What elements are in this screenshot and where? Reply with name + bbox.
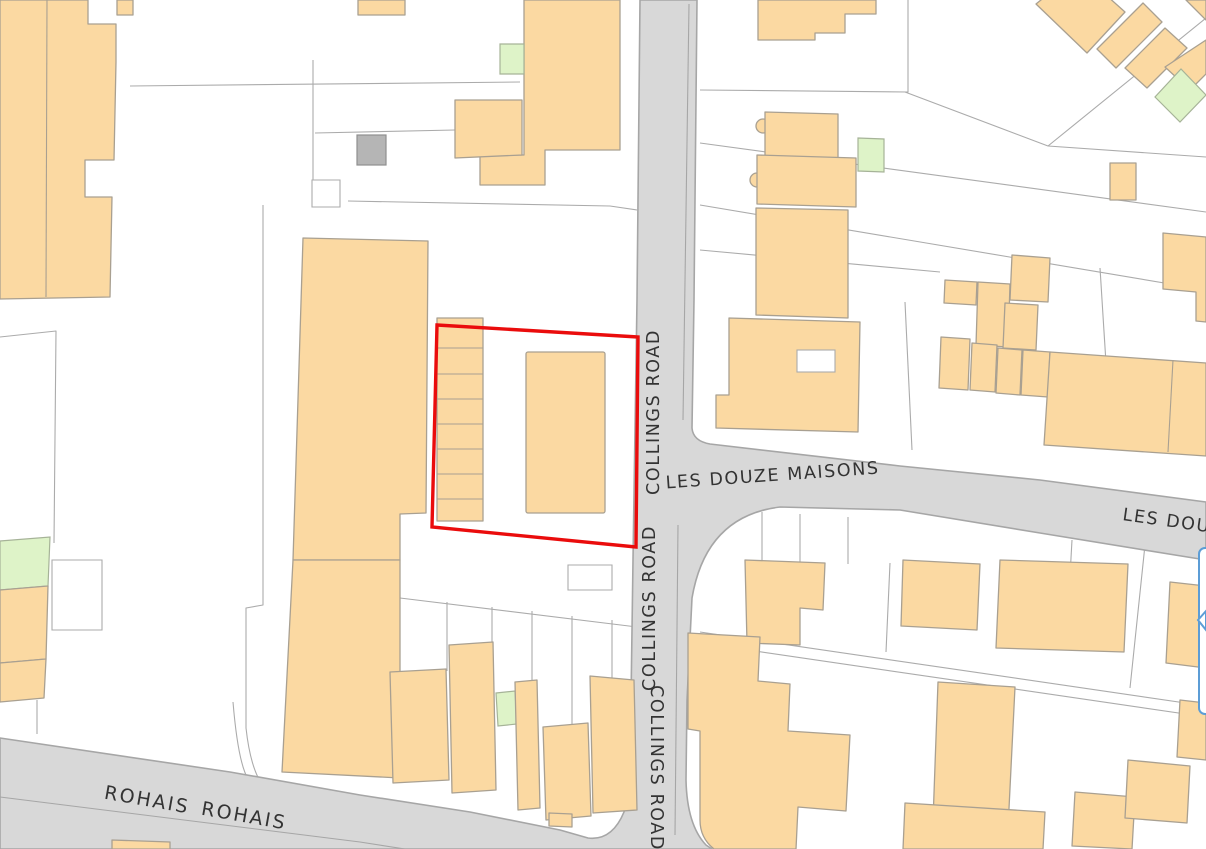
building-footprint — [282, 560, 400, 778]
building-footprint — [939, 337, 970, 390]
building-footprint — [543, 723, 591, 820]
building-footprint — [1044, 352, 1206, 456]
greenhouse-footprint — [858, 138, 884, 172]
parcel-line — [905, 302, 912, 450]
road-label-collings-road: COLLINGS ROAD — [646, 685, 666, 849]
building-footprint — [0, 586, 48, 663]
parcel-line — [348, 201, 637, 210]
parcel-box — [52, 560, 102, 630]
building-footprint — [1186, 0, 1206, 20]
parcel-line — [0, 331, 56, 543]
map-svg: COLLINGS ROAD COLLINGS ROAD COLLINGS ROA… — [0, 0, 1206, 849]
building-footprint — [688, 633, 850, 849]
parcel-line — [1130, 545, 1145, 688]
parcel-box — [568, 565, 612, 590]
building-footprint — [970, 343, 997, 392]
building-footprint — [455, 100, 522, 158]
building-footprint — [390, 669, 449, 783]
building-footprint — [1163, 233, 1206, 322]
building-footprint — [757, 155, 856, 207]
building-footprint — [903, 803, 1045, 849]
building-footprint — [590, 676, 637, 813]
greenhouse-footprint — [500, 44, 524, 74]
courtyard-notch — [797, 350, 835, 372]
parcel-line — [246, 205, 263, 728]
parcel-line — [886, 563, 890, 652]
building-footprint — [358, 0, 405, 15]
road-label-collings-road: COLLINGS ROAD — [644, 329, 664, 495]
building-footprint — [1010, 255, 1050, 302]
building-footprint — [0, 659, 46, 702]
building-footprint — [944, 280, 977, 305]
parcel-line — [246, 728, 260, 781]
greenhouse-footprint — [496, 691, 517, 726]
building-footprint — [549, 813, 572, 827]
map-canvas[interactable]: COLLINGS ROAD COLLINGS ROAD COLLINGS ROA… — [0, 0, 1206, 849]
building-footprint — [0, 0, 116, 299]
building-footprint — [1110, 163, 1136, 200]
building-footprint — [1021, 350, 1050, 397]
popup-panel-edge[interactable] — [1198, 548, 1206, 714]
road-label-collings-road: COLLINGS ROAD — [640, 525, 660, 691]
building-footprint — [758, 0, 876, 40]
greenhouse-footprint — [0, 537, 50, 590]
building-footprint — [480, 0, 620, 185]
building-footprint — [996, 348, 1022, 395]
popup-panel-border[interactable] — [1199, 548, 1206, 714]
building-footprint — [1003, 303, 1038, 350]
site-garage-block — [437, 318, 483, 521]
building-footprint — [449, 642, 496, 793]
outbuilding-gray — [357, 135, 386, 165]
building-footprint — [756, 208, 848, 318]
building-footprint — [293, 238, 428, 560]
building-footprint — [901, 560, 980, 630]
building-footprint — [745, 560, 825, 645]
building-footprint — [1125, 760, 1190, 823]
parcel-line — [315, 130, 455, 133]
building-footprint — [716, 318, 860, 432]
building-footprint — [515, 680, 540, 810]
building-footprint — [996, 560, 1128, 652]
building-footprint — [112, 840, 170, 849]
site-central-building — [526, 352, 605, 513]
parcel-line — [400, 598, 637, 627]
building-footprint — [117, 0, 133, 15]
building-footprint — [765, 112, 838, 158]
buildings — [0, 0, 1206, 849]
parcel-box — [312, 180, 340, 207]
parcel-line — [130, 82, 520, 86]
